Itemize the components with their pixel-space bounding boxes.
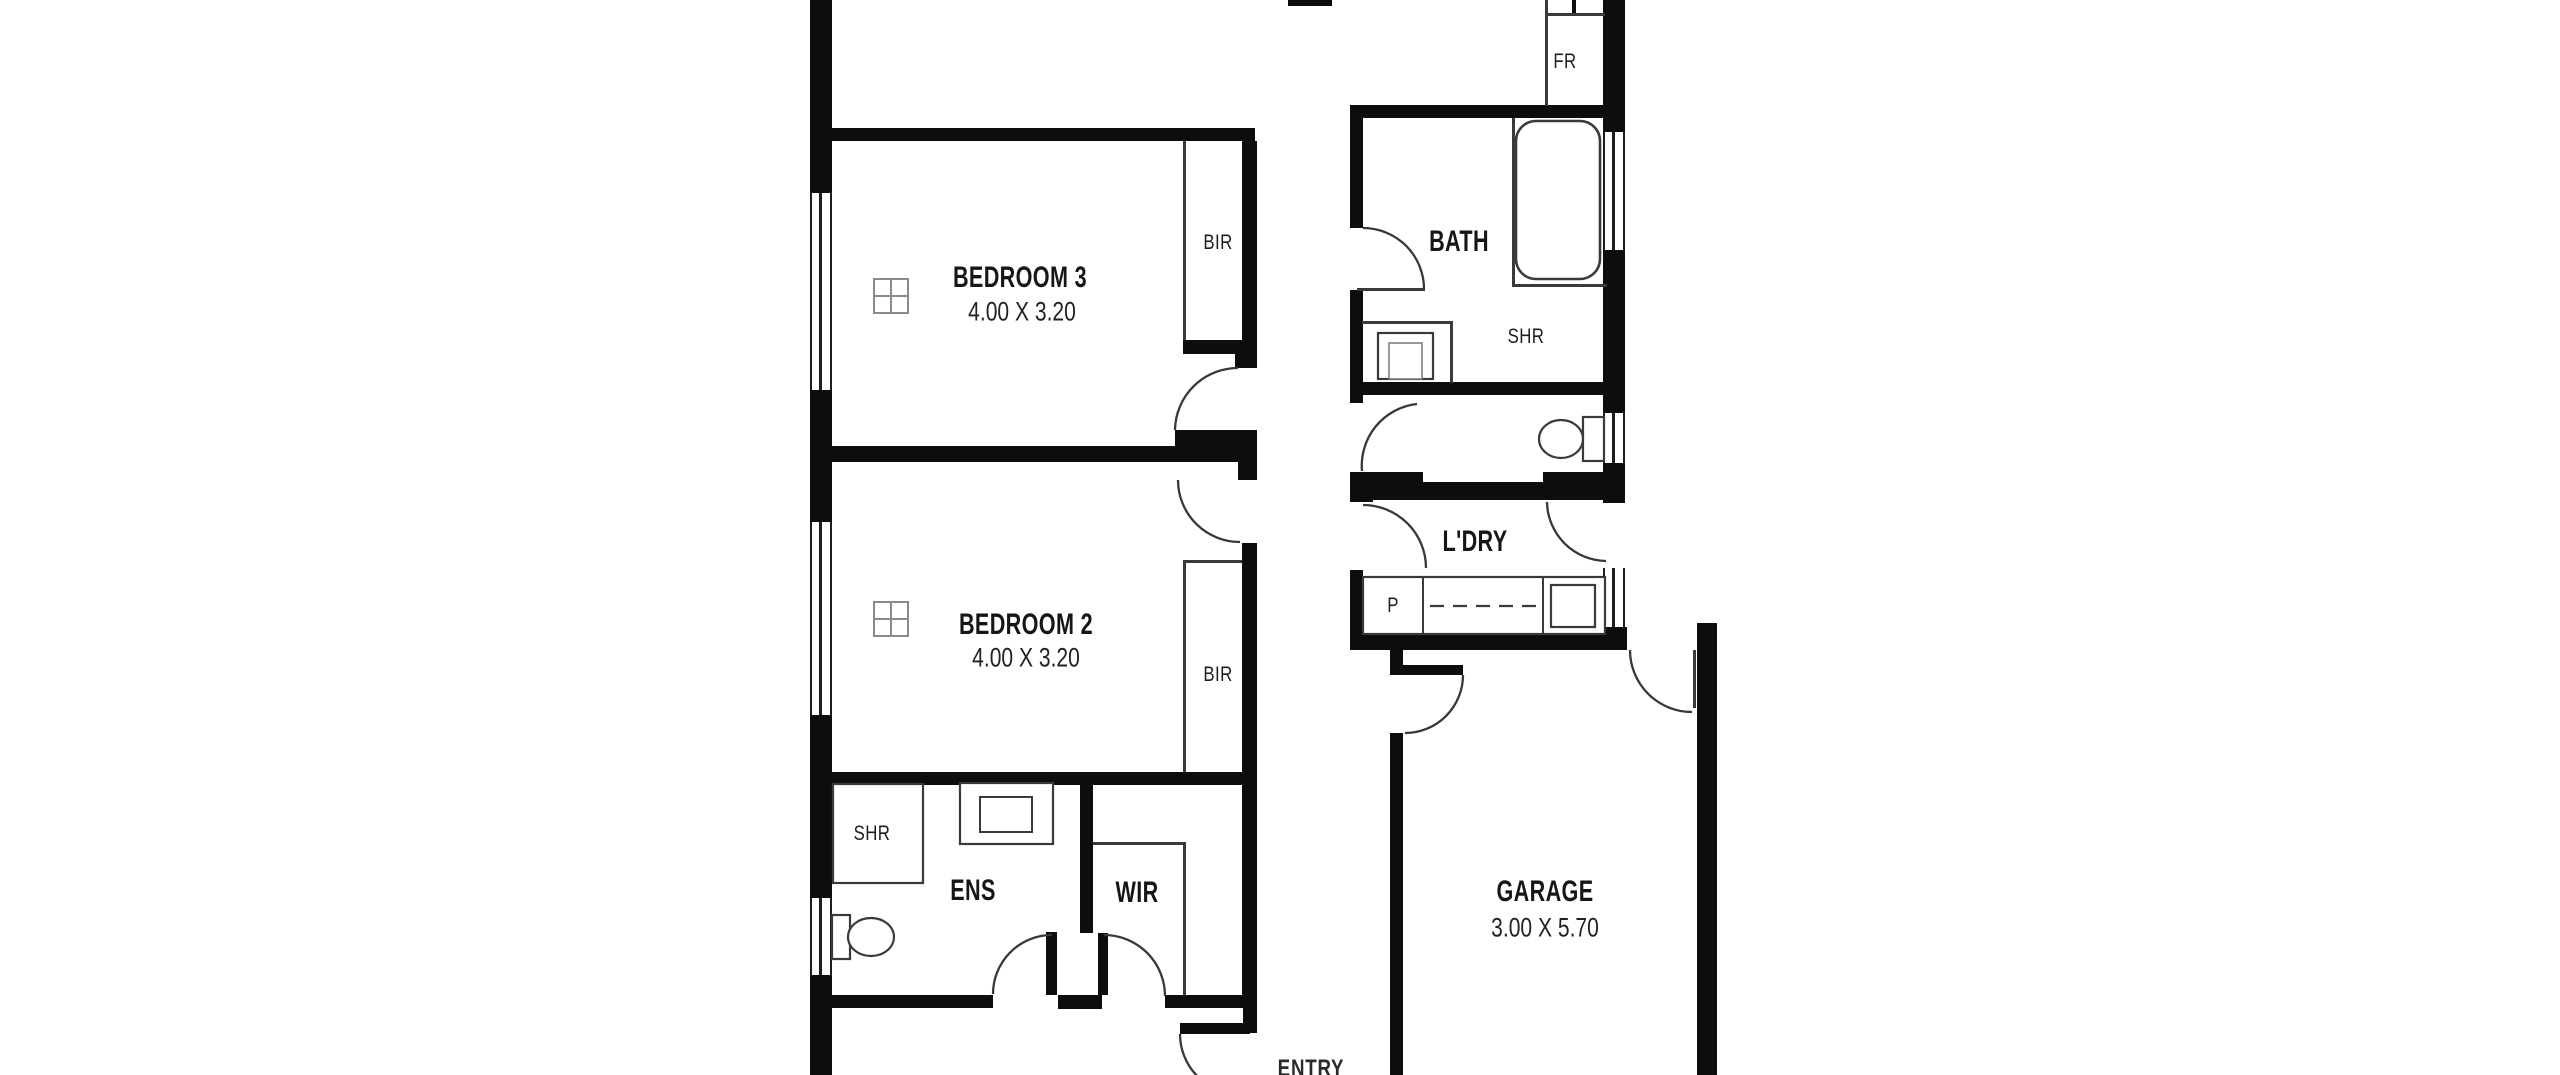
door-arc-side-entry bbox=[1630, 650, 1692, 712]
door-arc-wir bbox=[1104, 935, 1165, 996]
wall-left-top bbox=[810, 0, 832, 193]
window-ensuite bbox=[810, 898, 832, 975]
wall-ens-wir-divider bbox=[1080, 785, 1093, 933]
door-arc-bath bbox=[1363, 228, 1424, 289]
label-bedroom3: BEDROOM 3 bbox=[953, 261, 1087, 295]
wall-bedroom-divider bbox=[832, 446, 1257, 462]
door-arc-laundry bbox=[1363, 505, 1426, 568]
wall-bedroom3-top bbox=[810, 128, 1255, 141]
wall-bath-west-1 bbox=[1350, 105, 1363, 228]
ens-vanity bbox=[960, 783, 1053, 844]
window-bedroom3 bbox=[810, 193, 832, 390]
label-bedroom2-dims: 4.00 X 3.20 bbox=[972, 643, 1080, 674]
wall-bath-wc-divider bbox=[1350, 382, 1607, 395]
window-icon-bedroom2 bbox=[874, 602, 908, 636]
bir2-front-line bbox=[1183, 560, 1186, 772]
door-arc-wc bbox=[1362, 404, 1417, 471]
tub-alcove-bottom bbox=[1512, 284, 1607, 287]
window-bath bbox=[1603, 132, 1625, 250]
wall-left-bottom bbox=[810, 975, 832, 1075]
label-bath: BATH bbox=[1429, 225, 1489, 259]
bath-shower-screen-h bbox=[1362, 321, 1452, 324]
wall-garage-west bbox=[1390, 733, 1403, 1075]
tub-alcove-side bbox=[1512, 118, 1515, 286]
label-garage: GARAGE bbox=[1497, 875, 1594, 909]
laundry-trough bbox=[1551, 585, 1595, 627]
window-bedroom2 bbox=[810, 522, 832, 715]
wall-hall-west-2 bbox=[1242, 543, 1257, 772]
door-leaf-ens bbox=[1046, 932, 1057, 995]
wall-door-stub bbox=[1238, 430, 1257, 480]
label-fridge: FR bbox=[1553, 50, 1576, 74]
island-bench-cutoff bbox=[1288, 0, 1332, 6]
bath-shower-base bbox=[1378, 333, 1433, 379]
wall-wir-east bbox=[1242, 785, 1257, 995]
wall-garage-east bbox=[1697, 623, 1717, 1075]
bath-shower-screen-v bbox=[1450, 321, 1453, 383]
bathtub bbox=[1516, 121, 1600, 279]
wall-wc-laundry-divider bbox=[1350, 482, 1607, 500]
label-garage-dims: 3.00 X 5.70 bbox=[1491, 913, 1599, 944]
wc-toilet bbox=[1539, 417, 1604, 461]
label-shower-ensuite: SHR bbox=[854, 822, 891, 846]
wall-left-mid2 bbox=[810, 715, 832, 898]
wall-bir3-jamb bbox=[1235, 352, 1250, 368]
door-leaf-wir bbox=[1098, 933, 1108, 995]
label-bir-bedroom3: BIR bbox=[1203, 231, 1232, 255]
wall-left-mid1 bbox=[810, 390, 832, 522]
fridge-recess-front bbox=[1545, 13, 1605, 16]
floorplan-drawing bbox=[0, 0, 2560, 1075]
wall-bath-top bbox=[1350, 105, 1607, 118]
wall-hall-bottom-center bbox=[1058, 995, 1102, 1009]
wall-right-top bbox=[1603, 0, 1625, 132]
label-wir: WIR bbox=[1115, 876, 1158, 910]
ens-toilet bbox=[832, 915, 894, 959]
door-arc-garage bbox=[1405, 675, 1463, 733]
wall-laundry-west bbox=[1350, 570, 1363, 632]
label-entry: ENTRY bbox=[1278, 1055, 1345, 1075]
door-arcs bbox=[993, 228, 1692, 1075]
label-laundry: L'DRY bbox=[1443, 525, 1508, 559]
wall-entry-stub bbox=[1180, 1023, 1250, 1034]
door-arc-front-entry bbox=[1180, 1034, 1240, 1075]
bir3-front-line bbox=[1183, 141, 1186, 340]
door-leaf-laundry-rear bbox=[1543, 472, 1603, 482]
wall-hall-bottom-right bbox=[1165, 995, 1245, 1008]
wall-hall-bottom-left bbox=[832, 995, 993, 1008]
floorplan-canvas: BEDROOM 3 4.00 X 3.20 BEDROOM 2 4.00 X 3… bbox=[0, 0, 2560, 1075]
bir2-top-line bbox=[1183, 560, 1242, 563]
door-leaf-garage bbox=[1400, 665, 1463, 675]
fridge-cabinet-tick bbox=[1572, 0, 1576, 13]
window-icon-bedroom3 bbox=[874, 279, 908, 313]
wall-hall-west-1 bbox=[1242, 141, 1257, 368]
door-arc-ens bbox=[993, 935, 1052, 994]
window-wc bbox=[1603, 413, 1625, 463]
wir-shelf-h bbox=[1093, 842, 1185, 845]
window-laundry bbox=[1603, 568, 1625, 627]
laundry-bench bbox=[1363, 577, 1605, 634]
label-shower-bath: SHR bbox=[1508, 325, 1545, 349]
wir-shelf-v bbox=[1183, 842, 1186, 995]
label-ensuite: ENS bbox=[950, 874, 995, 908]
label-pantry: P bbox=[1387, 594, 1399, 618]
label-bedroom3-dims: 4.00 X 3.20 bbox=[968, 297, 1076, 328]
door-arc-laundry-rear bbox=[1547, 502, 1606, 561]
door-arc-bedroom2 bbox=[1178, 480, 1240, 542]
label-bir-bedroom2: BIR bbox=[1203, 663, 1232, 687]
door-leaf-side bbox=[1693, 650, 1696, 708]
door-arc-bedroom3 bbox=[1175, 368, 1238, 430]
wall-bir3-bottom bbox=[1183, 340, 1250, 354]
door-leaf-wc bbox=[1358, 472, 1423, 482]
label-bedroom2: BEDROOM 2 bbox=[959, 608, 1093, 642]
door-leaf-bath bbox=[1357, 288, 1425, 291]
